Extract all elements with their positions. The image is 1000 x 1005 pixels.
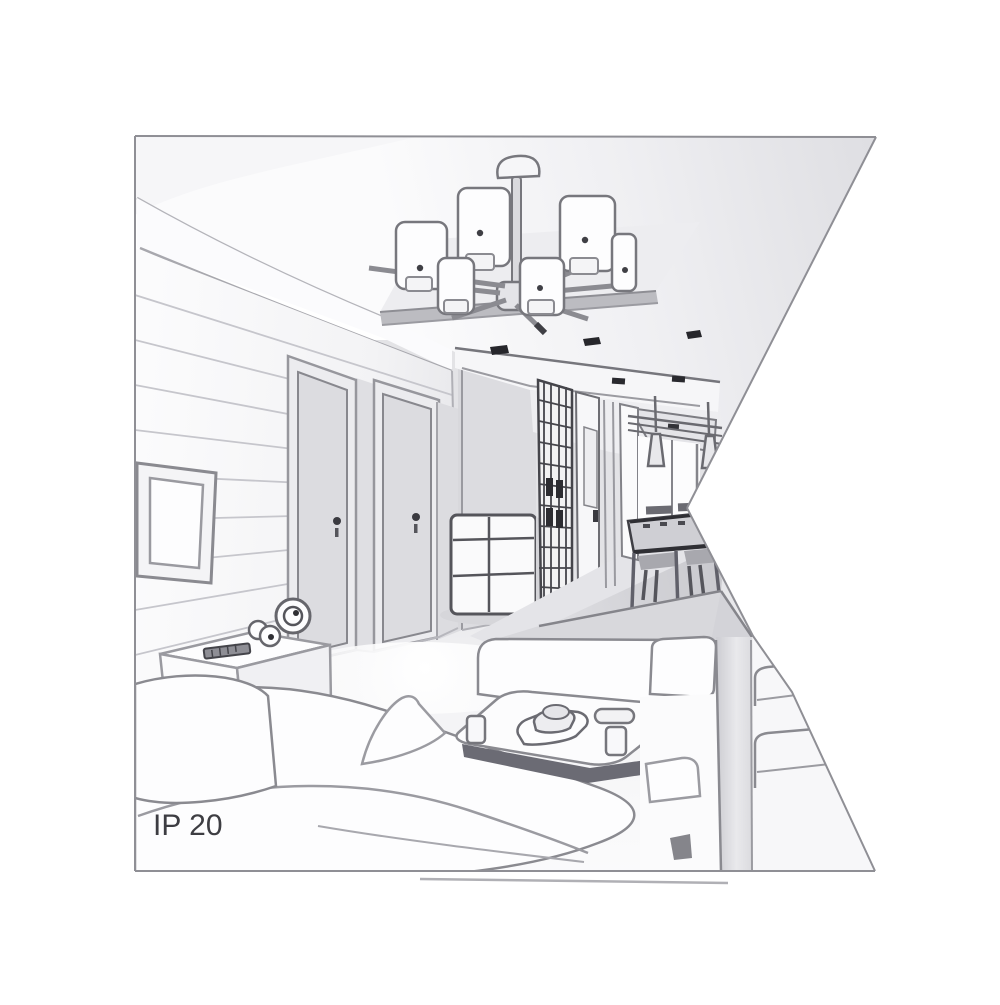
svg-text:IP 20: IP 20: [153, 809, 223, 842]
